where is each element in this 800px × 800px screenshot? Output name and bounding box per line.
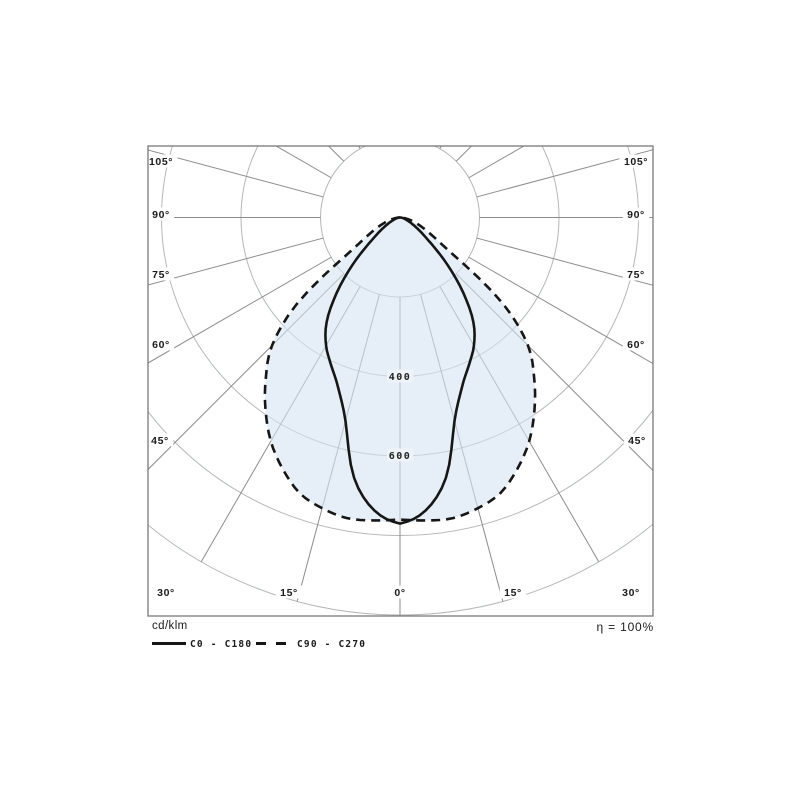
degree-label-15: 15°: [280, 587, 298, 599]
degree-label-75: 75°: [152, 269, 170, 281]
ray-r135: [456, 0, 681, 161]
legend-label-c90-c270: C90 - C270: [297, 639, 366, 650]
legend-label-c0-c180: C0 - C180: [190, 639, 252, 650]
solid-line-sample: [152, 642, 186, 645]
ring-value-label-400: 400: [389, 372, 412, 383]
ray-r120: [469, 19, 744, 178]
ray-l150: [201, 0, 360, 149]
ray-l120: [56, 19, 331, 178]
degree-label-30: 30°: [622, 587, 640, 599]
degree-label-105: 105°: [624, 156, 648, 168]
degree-label-105: 105°: [149, 156, 173, 168]
dashed-line-sample: [256, 642, 289, 645]
ray-r150: [440, 0, 599, 149]
ray-r165: [421, 0, 503, 141]
degree-label-45: 45°: [151, 435, 169, 447]
degree-label-60: 60°: [152, 339, 170, 351]
degree-label-60: 60°: [627, 339, 645, 351]
ray-l135: [119, 0, 344, 161]
ray-l165: [297, 0, 379, 141]
unit-label: cd/klm: [152, 620, 188, 632]
efficiency-label: η = 100%: [454, 620, 654, 634]
degree-label-75: 75°: [627, 269, 645, 281]
degree-label-30: 30°: [157, 587, 175, 599]
degree-label-90: 90°: [627, 209, 645, 221]
degree-label-45: 45°: [628, 435, 646, 447]
photometric-diagram-page: 105°90°75°60°45°30°15°0°15°30°45°60°75°9…: [0, 0, 800, 800]
degree-label-0: 0°: [394, 587, 405, 599]
ring-value-label-600: 600: [389, 451, 412, 462]
degree-label-90: 90°: [152, 209, 170, 221]
degree-label-15: 15°: [504, 587, 522, 599]
polar-intensity-chart: 105°90°75°60°45°30°15°0°15°30°45°60°75°9…: [0, 0, 800, 800]
